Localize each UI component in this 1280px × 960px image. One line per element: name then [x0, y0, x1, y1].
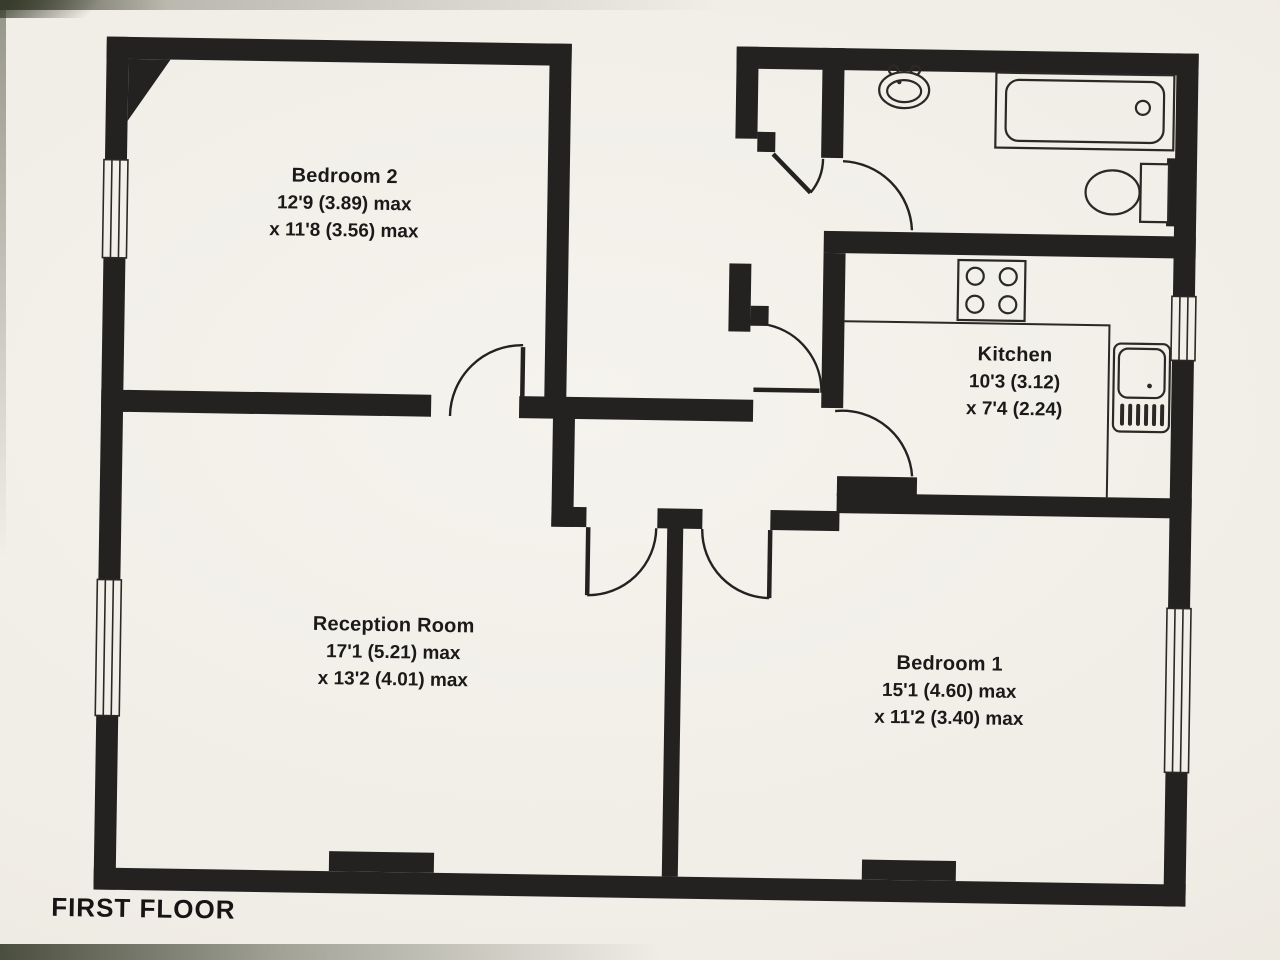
room-name: Bedroom 1 — [827, 649, 1072, 680]
wall-bedroom2-right — [544, 44, 572, 412]
door-hallway — [753, 325, 822, 393]
wash-basin-fixture — [879, 65, 930, 108]
door-bathroom — [842, 161, 913, 230]
wall-top-left — [107, 37, 572, 66]
wall-bedroom2-bottom — [101, 390, 431, 417]
room-dimension: x 11'2 (3.40) max — [826, 703, 1071, 734]
room-dimension: 17'1 (5.21) max — [263, 637, 523, 668]
wall-hall-south-c — [770, 510, 839, 531]
window-reception-left — [95, 579, 121, 715]
window-bedroom1-right — [1164, 608, 1191, 772]
room-label-reception: Reception Room 17'1 (5.21) max x 13'2 (4… — [263, 610, 524, 695]
room-name: Reception Room — [263, 610, 523, 641]
floor-title: FIRST FLOOR — [51, 892, 236, 926]
room-name: Kitchen — [895, 340, 1135, 371]
bathroom-fixtures — [877, 65, 1174, 222]
room-dimension: x 11'8 (3.56) max — [214, 215, 474, 246]
wall-bathroom-west — [821, 48, 845, 158]
pier-bedroom1 — [862, 860, 956, 881]
wall-top-right — [736, 46, 1198, 75]
wall-divider-central — [662, 523, 684, 876]
room-dimension: x 7'4 (2.24) — [894, 394, 1134, 425]
door-bedroom1 — [701, 529, 770, 598]
room-dimension: 12'9 (3.89) max — [214, 188, 474, 219]
room-dimension: 10'3 (3.12) — [894, 367, 1134, 398]
wall-bathroom-south — [824, 231, 1196, 259]
room-dimension: x 13'2 (4.01) max — [263, 664, 523, 695]
room-label-bedroom1: Bedroom 1 15'1 (4.60) max x 11'2 (3.40) … — [826, 649, 1072, 734]
room-label-bedroom2: Bedroom 2 12'9 (3.89) max x 11'8 (3.56) … — [214, 161, 475, 246]
room-label-kitchen: Kitchen 10'3 (3.12) x 7'4 (2.24) — [894, 340, 1135, 425]
door-bedroom2 — [450, 344, 523, 417]
wall-vestibule-west — [735, 46, 758, 138]
window-kitchen-right — [1171, 296, 1196, 360]
floorplan-photo: Bedroom 2 12'9 (3.89) max x 11'8 (3.56) … — [0, 0, 1280, 960]
room-name: Bedroom 2 — [215, 161, 475, 192]
jamb-hall-door — [750, 306, 768, 326]
hob-fixture — [958, 260, 1026, 321]
wall-bedroom1-north — [837, 493, 1192, 519]
wall-hall-south-a — [551, 507, 586, 528]
wall-corner-chamfer — [128, 59, 171, 122]
jamb-front-door — [757, 132, 775, 152]
pier-reception — [329, 851, 434, 873]
floorplan-paper: Bedroom 2 12'9 (3.89) max x 11'8 (3.56) … — [0, 0, 1280, 960]
door-reception — [587, 527, 656, 596]
floorplan-drawing — [0, 0, 1280, 960]
wall-bottom — [94, 867, 1186, 906]
wall-kitchen-west — [821, 253, 845, 408]
wall-hall-west — [728, 263, 751, 331]
bathtub-fixture — [995, 73, 1174, 151]
window-bedroom2-left — [102, 160, 128, 258]
toilet-fixture — [1085, 163, 1169, 222]
door-entrance — [773, 154, 824, 193]
room-dimension: 15'1 (4.60) max — [827, 676, 1072, 707]
